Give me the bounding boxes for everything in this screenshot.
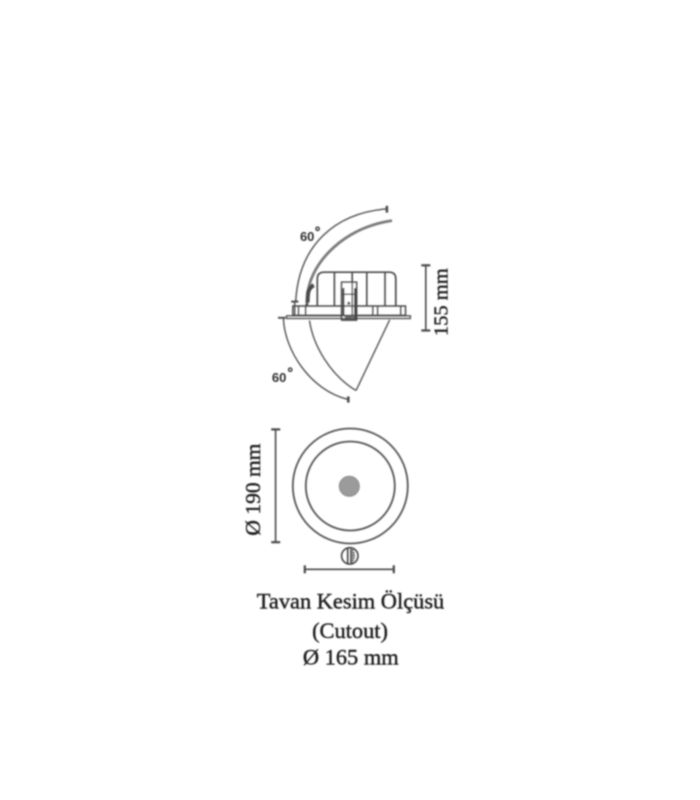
svg-text:Tavan Kesim Ölçüsü: Tavan Kesim Ölçüsü [257, 589, 444, 614]
svg-text:(Cutout): (Cutout) [312, 618, 388, 643]
svg-text:60: 60 [272, 370, 286, 385]
svg-text:155 mm: 155 mm [430, 268, 452, 336]
svg-text:Ø 190 mm: Ø 190 mm [241, 443, 265, 535]
svg-text:60: 60 [300, 229, 314, 244]
svg-text:Ø 165 mm: Ø 165 mm [303, 645, 399, 670]
